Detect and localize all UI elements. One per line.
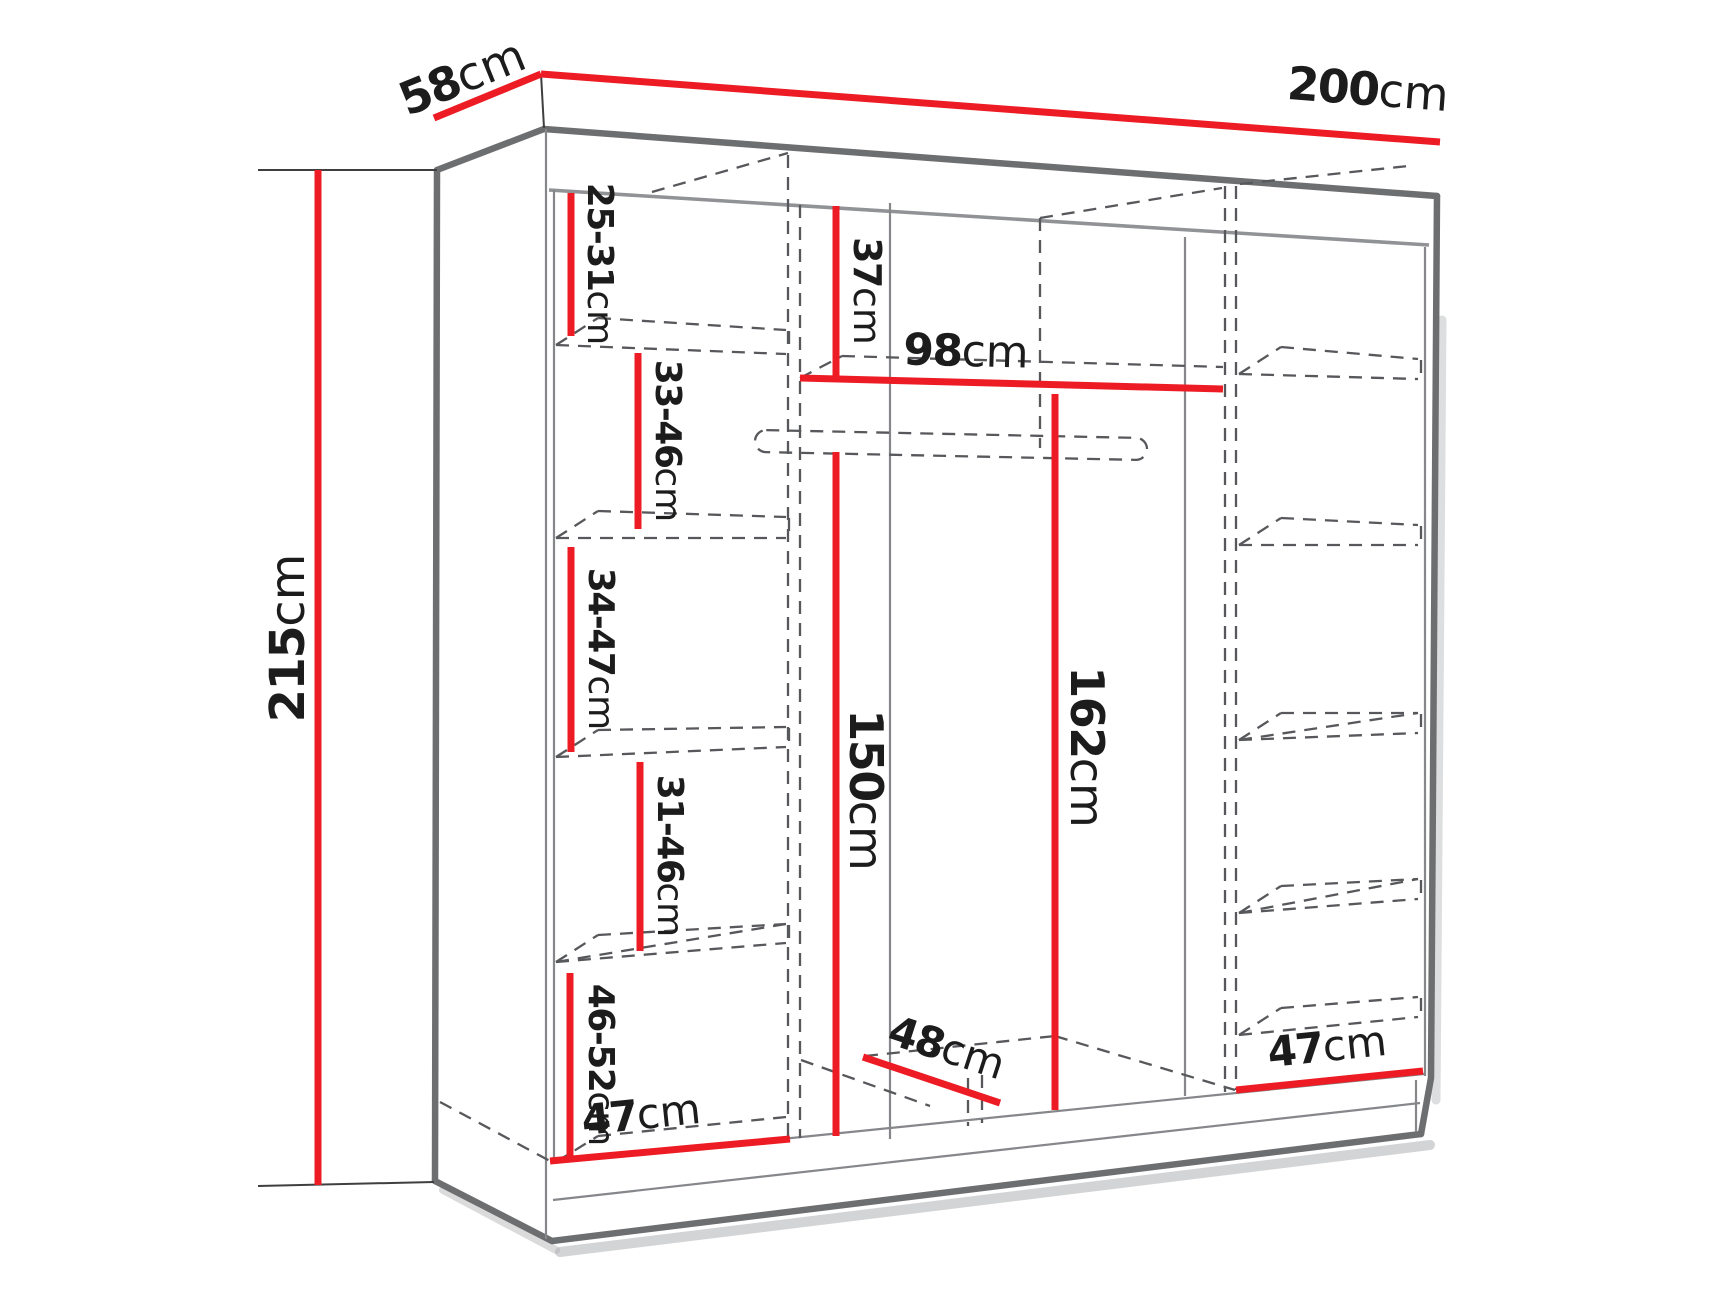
right-shelf-3 bbox=[1239, 713, 1421, 740]
diagram-canvas: 58cm 200cm 215cm 25-31cm 33-46cm 34-47cm… bbox=[0, 0, 1726, 1295]
top-corner-connector bbox=[541, 74, 544, 128]
front-right-edge bbox=[1421, 196, 1437, 1134]
side-height-label: 162cm bbox=[1060, 666, 1114, 828]
front-top-edge bbox=[544, 129, 1437, 196]
right-shelf-2 bbox=[1239, 518, 1421, 545]
top-hidden-diagonal-right bbox=[1240, 166, 1408, 184]
depth-label: 58cm bbox=[391, 27, 533, 126]
left-shelf-3 bbox=[556, 727, 789, 757]
right-shelf-1 bbox=[1239, 347, 1421, 379]
hanging-height-label: 150cm bbox=[839, 709, 893, 871]
shadow-bottom bbox=[560, 1145, 1430, 1252]
top-hidden-diagonal-middle bbox=[1040, 188, 1222, 218]
gap4-label: 31-46cm bbox=[650, 775, 691, 938]
side-panel-top-edge bbox=[437, 129, 544, 170]
wardrobe-dimension-diagram: 58cm 200cm 215cm 25-31cm 33-46cm 34-47cm… bbox=[0, 0, 1726, 1295]
gap3-label: 34-47cm bbox=[581, 568, 622, 731]
hanging-rod bbox=[755, 430, 1147, 460]
shadow-bottom-left bbox=[443, 1190, 556, 1250]
height-extension-bottom bbox=[258, 1182, 434, 1186]
right-shelf-4 bbox=[1239, 879, 1421, 913]
width-label: 200cm bbox=[1285, 56, 1450, 122]
height-label: 215cm bbox=[260, 554, 316, 723]
right-floor-width-dimension-line bbox=[1236, 1071, 1423, 1090]
middle-width-dimension-line bbox=[800, 378, 1223, 389]
middle-shelf-back-edge bbox=[842, 356, 1223, 367]
middle-width-label: 98cm bbox=[903, 324, 1030, 378]
gap2-label: 33-46cm bbox=[648, 360, 689, 523]
floor-depth-label: 48cm bbox=[883, 1005, 1012, 1089]
gap1-label: 25-31cm bbox=[580, 183, 621, 346]
cornice-bottom-edge bbox=[549, 190, 1429, 245]
side-panel-left-edge bbox=[435, 170, 437, 1181]
right-floor-width-label: 47cm bbox=[1265, 1015, 1389, 1076]
top-hidden-diagonal-left bbox=[652, 153, 788, 192]
top-gap-label: 37cm bbox=[845, 237, 889, 345]
side-panel-bottom-edge bbox=[435, 1181, 552, 1241]
